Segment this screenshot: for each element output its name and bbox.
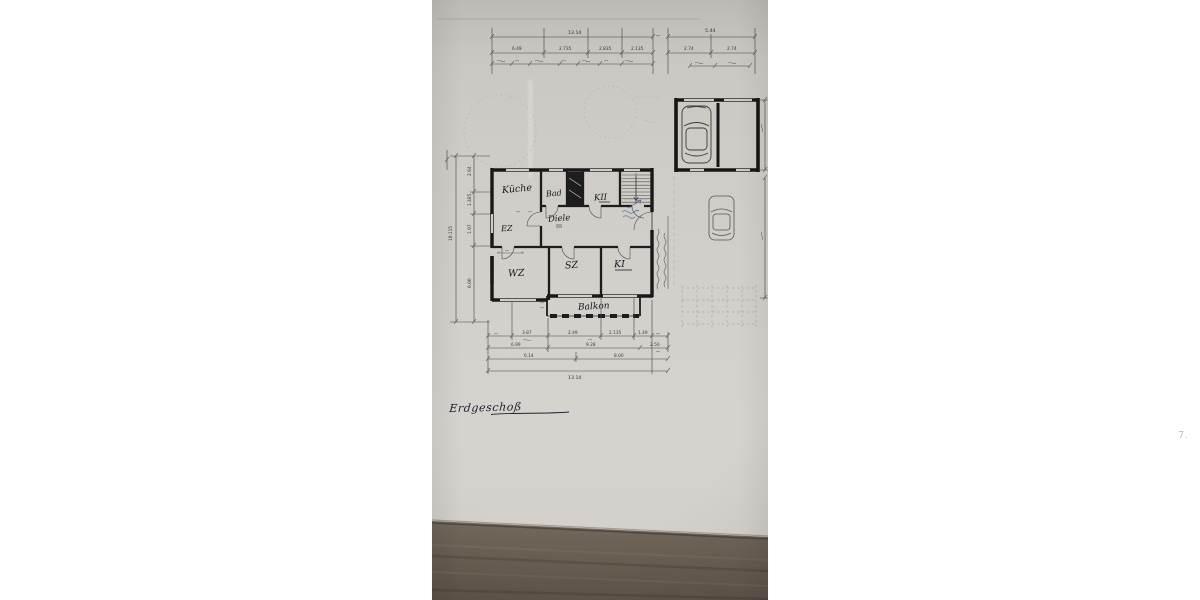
dim-left-total: 10.115	[448, 226, 454, 241]
dim-left-4: 6.00	[467, 278, 473, 288]
dim-bottom1-1: 3.87	[522, 330, 532, 336]
dim-top-total-right: 5.44	[705, 28, 715, 34]
room-label-wz: WZ	[508, 268, 525, 280]
screenshot-canvas: 13.14 5.44 6.49 2.735 2.835 2.135 2.74 2…	[0, 0, 1200, 600]
dim-left-2: 1.485	[467, 193, 473, 206]
paper-crease	[528, 80, 533, 178]
floor-plan-photo: 13.14 5.44 6.49 2.735 2.835 2.135 2.74 2…	[432, 0, 768, 600]
wc-shaft	[568, 172, 582, 205]
dim-bottom1-4: 1.49	[638, 330, 648, 336]
dim-bottom1-3: 2.135	[609, 330, 622, 336]
dim-bottom2-2: 9.28	[586, 342, 596, 348]
dim-top-1: 6.49	[512, 46, 522, 52]
dim-top-2: 2.735	[559, 46, 572, 52]
room-label-diele: Diele	[547, 213, 571, 225]
dim-top-right-1: 2.74	[684, 46, 694, 52]
title-erdgeschoss: Erdgeschoß	[448, 400, 523, 415]
room-label-bad: Bad	[545, 188, 562, 198]
dim-bottom2-1: 6.99	[511, 342, 521, 348]
dim-left-3: 1.97	[467, 224, 473, 234]
dim-bottom2-3: 2.50	[650, 342, 660, 348]
room-label-ki: KI	[613, 259, 625, 270]
room-label-balkon: Balkon	[577, 301, 610, 313]
dim-bottom3-1: 6.14	[524, 353, 534, 359]
dim-left-1: 2.94	[467, 166, 473, 176]
dim-bottom-total: 13.14	[568, 375, 581, 381]
dim-top-total-left: 13.14	[568, 30, 581, 36]
floor-plan-drawing: 13.14 5.44 6.49 2.735 2.835 2.135 2.74 2…	[432, 0, 768, 600]
dim-bottom3-2: 8.00	[614, 353, 624, 359]
room-label-sz: SZ	[565, 260, 579, 272]
dim-top-3: 2.835	[599, 46, 612, 52]
room-label-ez: EZ	[500, 224, 513, 233]
dim-top-right-2: 2.74	[727, 46, 737, 52]
dim-bottom1-2: 2.49	[568, 330, 578, 336]
margin-page-mark: 7.	[1178, 430, 1188, 441]
dim-top-4: 2.135	[631, 46, 644, 52]
